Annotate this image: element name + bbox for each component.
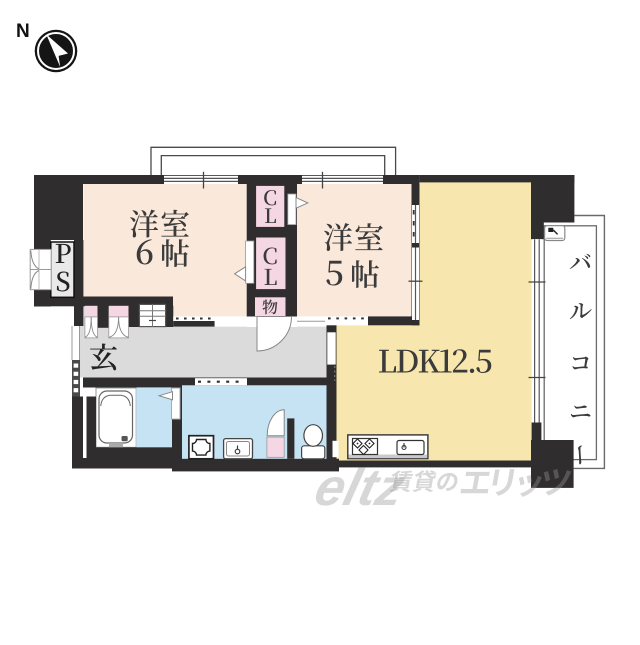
svg-text:N: N [16,21,30,42]
